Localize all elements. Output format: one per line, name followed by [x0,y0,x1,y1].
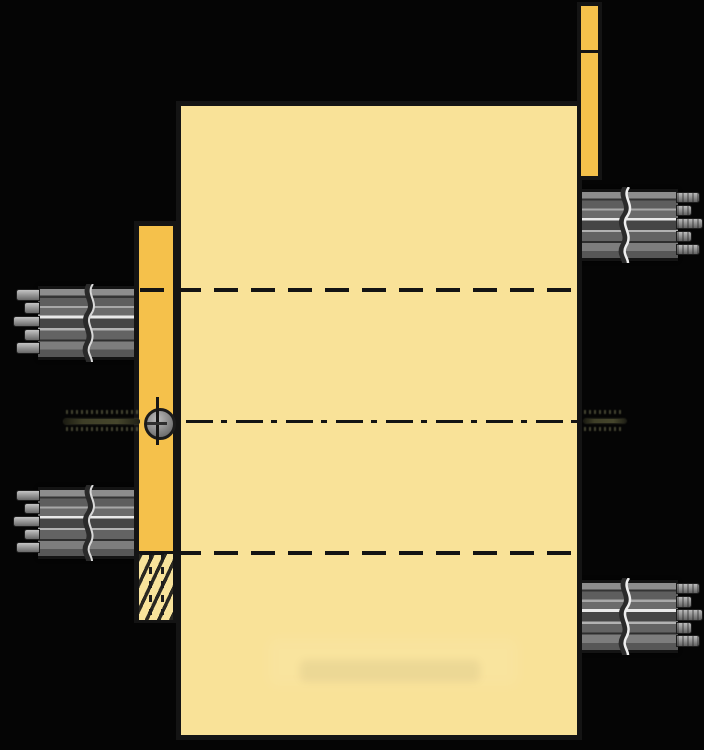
shaft-break-line-icon [78,284,98,362]
upper-gear-axis-dashed-line [140,288,578,292]
hatch-dashed-line [149,553,152,615]
spline-tooth [676,583,700,594]
right-centerline-pin-stub [584,419,626,424]
spline-tooth [13,316,40,328]
spline-tooth [676,205,692,216]
watermark-ghost [300,660,480,682]
spline-tooth [676,635,700,646]
spline-tooth [676,192,700,203]
upper-right-splined-shaft [576,189,702,261]
spline-tooth [676,622,692,633]
dimension-text-remnant [66,427,138,431]
spline-tooth [16,490,40,501]
main-axis-dash-dot-line [186,420,578,423]
spline-tooth [676,231,692,242]
shaft-break-line-icon [614,578,634,655]
spline-tooth [16,342,40,354]
spline-tooth [13,516,40,527]
spline-tooth [676,609,703,620]
bolt-crosshair-line [156,397,159,445]
shaft-teeth [676,189,702,261]
shaft-break-line-icon [78,485,98,561]
hatch-dashed-line [161,553,164,615]
lower-right-splined-shaft [576,580,702,653]
flange-split-line [577,50,602,53]
spline-tooth [24,529,40,540]
spline-tooth [16,289,40,301]
upper-left-splined-shaft [14,286,140,360]
dimension-text-remnant [584,410,624,414]
bolt-slot-line [147,422,167,425]
shaft-break-line-icon [614,187,634,263]
left-centerline-pin-stub [64,419,140,424]
spline-tooth [24,302,40,314]
shaft-teeth [676,580,702,653]
top-right-flange [577,2,602,180]
spline-tooth [24,503,40,514]
lower-gear-axis-dashed-line [140,551,578,555]
lower-left-splined-shaft [14,487,140,559]
spline-tooth [16,542,40,553]
dimension-text-remnant [584,427,624,431]
left-flange-section-hatch [139,551,173,620]
spline-tooth [24,329,40,341]
drawing-canvas [0,0,704,750]
shaft-teeth [14,487,40,559]
spline-tooth [676,244,700,255]
shaft-teeth [14,286,40,360]
spline-tooth [676,218,703,229]
spline-tooth [676,596,692,607]
dimension-text-remnant [66,410,138,414]
